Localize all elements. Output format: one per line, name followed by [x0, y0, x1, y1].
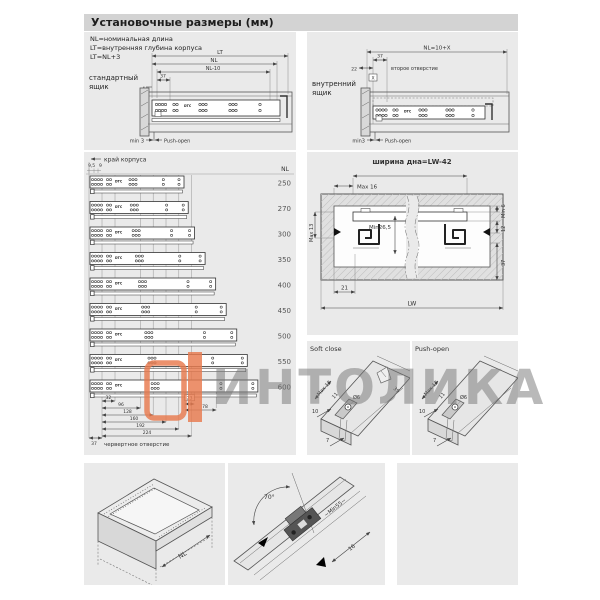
svg-text:DTC: DTC — [115, 384, 123, 388]
dim-label-37: 37 — [501, 260, 507, 266]
dim-label-nl10x: NL=10+X — [423, 46, 450, 52]
nl-value: 270 — [278, 205, 291, 213]
front-dim-chain: 32 96 128 160 192 224 — [102, 395, 192, 436]
svg-text:DTC: DTC — [115, 282, 123, 286]
nl-column-header: NL — [281, 166, 289, 173]
cross-section-panel: ширина дна=LW-42 Max 16 Min26,5 — [307, 152, 518, 335]
catalog-page: Установочные размеры (мм) NL=номинальная… — [0, 0, 600, 600]
svg-text:DTC: DTC — [115, 205, 123, 209]
inner-drawer-panel: внутренний ящик NL=10+X 37 22 X второе о… — [307, 32, 518, 150]
rail-row: DTC — [90, 278, 216, 296]
rail-row: DTC — [90, 176, 184, 194]
dim-label-min265: Min26,5 — [369, 225, 392, 231]
dim-label-nl: NL — [177, 549, 189, 561]
svg-text:DTC: DTC — [115, 307, 123, 311]
soft-close-label: Soft close — [310, 345, 342, 353]
second-hole-label: второе отверстие — [391, 66, 438, 72]
svg-text:32: 32 — [106, 395, 112, 401]
dim-label-12: 12 — [501, 226, 507, 232]
drawer-iso-drawing: NL — [84, 463, 225, 585]
length-table-drawing: край корпуса 9,5 9 NL DTC250DTC270D — [84, 152, 296, 455]
svg-text:78: 78 — [202, 404, 208, 410]
rail-row: DTC — [90, 202, 188, 220]
rail-row: DTC — [90, 329, 237, 347]
rail-row: DTC — [90, 253, 205, 271]
rail-rows: DTC250DTC270DTC300DTC350DTC400DTC450DTC5… — [90, 176, 291, 398]
rail-row: DTC — [90, 380, 258, 398]
drawer-iso-panel: NL — [84, 463, 225, 585]
dim-label-7: 7 — [433, 438, 436, 444]
dim-label-max16: Max 16 — [357, 185, 378, 191]
dim-label-dia6: Ø6 — [353, 394, 360, 401]
slide-iso-panel: 70° ~Min55~ 16 — [228, 463, 385, 585]
nl-value: 500 — [278, 333, 291, 341]
dim-label-x: X — [371, 76, 374, 82]
dim-label-7: 7 — [326, 438, 329, 444]
dim-label-37: 37 — [160, 74, 166, 80]
cross-section-drawing: ширина дна=LW-42 Max 16 Min26,5 — [307, 152, 518, 335]
dim-label-10: 10 — [312, 409, 318, 415]
dim-label-nl: NL — [210, 58, 218, 64]
nl-value: 300 — [278, 231, 291, 239]
svg-text:23: 23 — [187, 395, 193, 401]
svg-text:DTC: DTC — [115, 231, 123, 235]
dim-label-nl10: NL-10 — [206, 66, 221, 72]
soft-close-panel: Soft close 39 Max 13 11 10 Ø6 7 — [307, 341, 410, 455]
push-open-label: Push-open — [385, 139, 411, 145]
brand-text: DTC — [184, 104, 192, 108]
push-open-label: Push-open — [164, 139, 190, 145]
dim-label-21: 21 — [341, 286, 348, 292]
svg-text:DTC: DTC — [115, 256, 123, 260]
inner-drawer-drawing: NL=10+X 37 22 X второе отверстие — [307, 32, 518, 150]
offset-dim-label: 37 — [91, 441, 97, 447]
nl-value: 550 — [278, 358, 291, 366]
brand-text: DTC — [404, 110, 412, 114]
length-table-panel: край корпуса 9,5 9 NL DTC250DTC270D — [84, 152, 296, 455]
dim-label-dia6: Ø6 — [460, 394, 467, 401]
svg-text:160: 160 — [130, 416, 139, 422]
svg-text:DTC: DTC — [115, 333, 123, 337]
rail-row: DTC — [90, 355, 247, 373]
dim-label-min3: min 3 — [130, 139, 144, 145]
rail-row: DTC — [90, 304, 226, 322]
nl-value: 400 — [278, 282, 291, 290]
soft-close-drawing: Soft close 39 Max 13 11 10 Ø6 7 — [307, 341, 410, 455]
push-open-drawing: Push-open Max 13 11 10 Ø6 7 — [412, 341, 518, 455]
svg-text:DTC: DTC — [115, 358, 123, 362]
dim-label-37: 37 — [377, 54, 383, 60]
push-open-panel: Push-open Max 13 11 10 Ø6 7 — [412, 341, 518, 455]
dim-label-70deg: 70° — [264, 494, 275, 501]
push-open-label: Push-open — [415, 345, 449, 353]
dim-label-22: 22 — [351, 67, 357, 73]
dim-label-max13: Max 13 — [423, 380, 440, 398]
page-title: Установочные размеры (мм) — [84, 14, 518, 31]
dim-label-min6: Min 6 — [501, 204, 507, 218]
dim-label-lt: LT — [217, 50, 223, 56]
section-title: ширина дна=LW-42 — [372, 158, 451, 166]
empty-panel — [397, 463, 518, 585]
svg-text:128: 128 — [123, 409, 132, 415]
nl-value: 350 — [278, 256, 291, 264]
svg-text:DTC: DTC — [115, 180, 123, 184]
rail-row: DTC — [90, 227, 195, 245]
nl-value: 250 — [278, 180, 291, 188]
svg-text:96: 96 — [118, 402, 124, 408]
dim-label-max13: Max 13 — [316, 380, 333, 398]
dim-label-min3: min3 — [352, 139, 365, 145]
nl-value: 600 — [278, 384, 291, 392]
standard-drawer-panel: NL=номинальная длина LT=внутренняя глуби… — [84, 32, 296, 150]
dim-label-max13: Max 13 — [309, 224, 315, 242]
dim-label-lw: LW — [408, 301, 417, 308]
standard-drawer-drawing: LT NL NL-10 37 4 — [84, 32, 296, 150]
edge-label: край корпуса — [104, 157, 147, 164]
dim-label-16: 16 — [348, 543, 358, 552]
slide-iso-drawing: 70° ~Min55~ 16 — [228, 463, 385, 585]
svg-text:192: 192 — [136, 423, 145, 429]
dim-label-10: 10 — [419, 409, 425, 415]
dim-label-9: 9 — [99, 163, 102, 169]
svg-text:224: 224 — [143, 430, 152, 436]
table-caption: червертное отверстие — [104, 442, 170, 448]
nl-value: 450 — [278, 307, 291, 315]
